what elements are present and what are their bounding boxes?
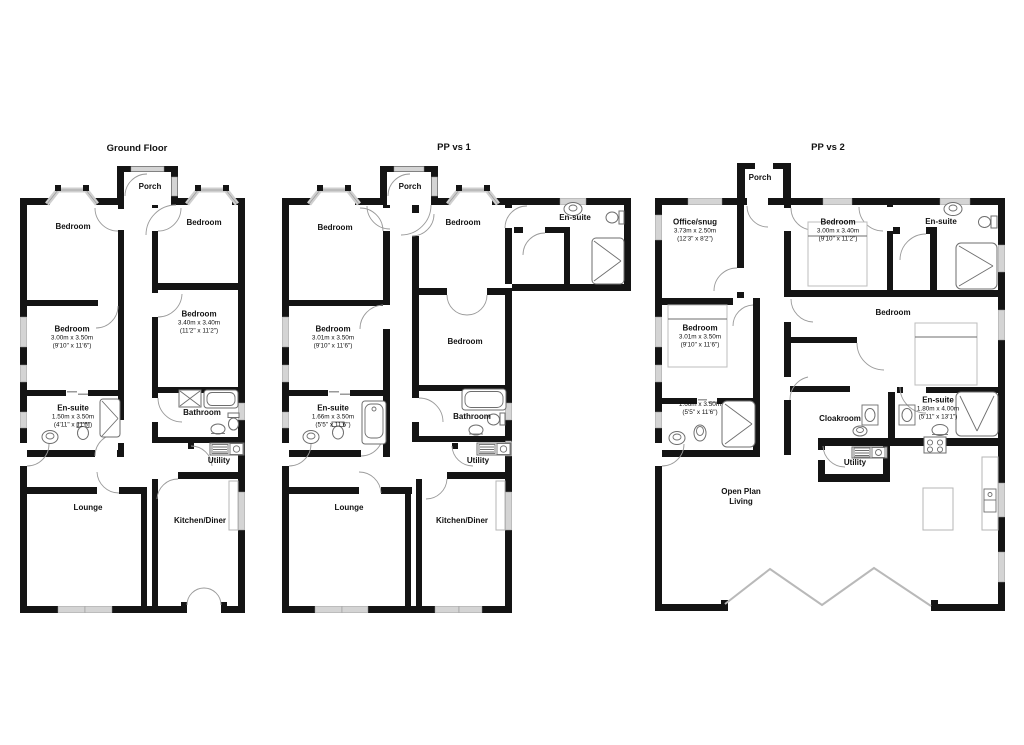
floorplan-drawing xyxy=(0,0,1024,745)
room-label-bedroom: Bedroom3.01m x 3.50m(9'10" x 11'6") xyxy=(312,324,354,349)
room-label-porch: Porch xyxy=(399,182,422,192)
room-label-ensuite: En-suite1.50m x 3.50m(4'11" x 11'6") xyxy=(52,403,94,428)
floorplan-image: Ground Floor Porch Bedroom Bedroom Bedro… xyxy=(0,0,1024,745)
plan-title-ground-floor: Ground Floor xyxy=(107,143,168,155)
room-label-bedroom: Bedroom xyxy=(317,223,352,233)
room-label-open-plan-living: Open Plan Living xyxy=(720,487,762,507)
bifold-doors xyxy=(725,568,931,606)
room-label-kitchen-diner: Kitchen/Diner xyxy=(174,516,226,526)
room-label-lounge: Lounge xyxy=(74,503,103,513)
room-label-porch: Porch xyxy=(139,182,162,192)
plan2-walls xyxy=(282,166,631,613)
room-label-bedroom: Bedroom xyxy=(186,218,221,228)
room-label-bedroom: Bedroom xyxy=(55,222,90,232)
room-label-ensuite: En-suite1.66m x 3.50m(5'5" x 11'6") xyxy=(312,403,354,428)
room-label-bedroom: Bedroom3.00m x 3.50m(9'10" x 11'6") xyxy=(51,324,93,349)
room-label-kitchen-diner: Kitchen/Diner xyxy=(436,516,488,526)
room-label-utility: Utility xyxy=(467,456,489,466)
plan-title-pp-vs-2: PP vs 2 xyxy=(811,142,845,154)
room-label-office-snug: Office/snug3.73m x 2.50m(12'3" x 8'2") xyxy=(673,217,717,242)
room-label-ensuite: En-suite1.80m x 4.00m(5'11" x 13'1") xyxy=(917,395,959,420)
kitchen-island xyxy=(923,488,953,530)
room-label-bedroom: Bedroom3.00m x 3.40m(9'10" x 11'2") xyxy=(817,217,859,242)
room-label-bedroom: Bedroom xyxy=(447,337,482,347)
room-label-lounge: Lounge xyxy=(335,503,364,513)
room-label-ensuite: En-suite xyxy=(559,213,591,223)
plan-pp-vs-1 xyxy=(282,166,631,613)
room-label-cloakroom: Cloakroom xyxy=(819,414,861,424)
plan-title-pp-vs-1: PP vs 1 xyxy=(437,142,471,154)
room-label-ensuite: En-suite xyxy=(925,217,957,227)
plan-ground-floor xyxy=(20,166,245,613)
room-label-bedroom: Bedroom xyxy=(875,308,910,318)
room-label-shower-room: 1.66m x 3.50m(5'5" x 11'6") xyxy=(679,401,721,417)
plan2-fixtures xyxy=(303,203,624,531)
room-label-bathroom: Bathroom xyxy=(453,412,491,422)
room-label-bedroom: Bedroom xyxy=(445,218,480,228)
room-label-bedroom: Bedroom3.01m x 3.50m(9'10" x 11'6") xyxy=(679,323,721,348)
room-label-bedroom: Bedroom3.40m x 3.40m(11'2" x 11'2") xyxy=(178,309,220,334)
room-label-porch: Porch xyxy=(749,173,772,183)
room-label-utility: Utility xyxy=(208,456,230,466)
room-label-bathroom: Bathroom xyxy=(183,408,221,418)
room-label-utility: Utility xyxy=(844,458,866,468)
